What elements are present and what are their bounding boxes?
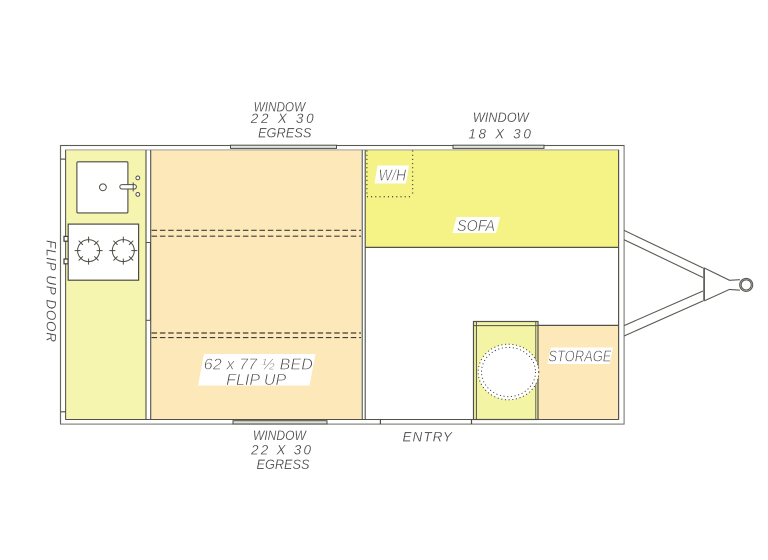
svg-text:18 X 30: 18 X 30 [468,127,531,142]
svg-text:W/H: W/H [379,168,407,185]
svg-text:EGRESS: EGRESS [257,457,310,472]
svg-text:FLIP UP: FLIP UP [226,372,286,389]
svg-text:FLIP UP DOOR: FLIP UP DOOR [44,240,59,342]
svg-text:WINDOW: WINDOW [473,110,530,125]
svg-text:WINDOW: WINDOW [253,428,307,443]
svg-text:ENTRY: ENTRY [402,430,452,445]
svg-text:62 x 77 ½ BED: 62 x 77 ½ BED [204,357,313,374]
svg-text:22 X 30: 22 X 30 [250,443,311,458]
svg-text:EGRESS: EGRESS [258,126,312,141]
svg-text:SOFA: SOFA [457,218,495,235]
svg-text:STORAGE: STORAGE [548,349,612,366]
